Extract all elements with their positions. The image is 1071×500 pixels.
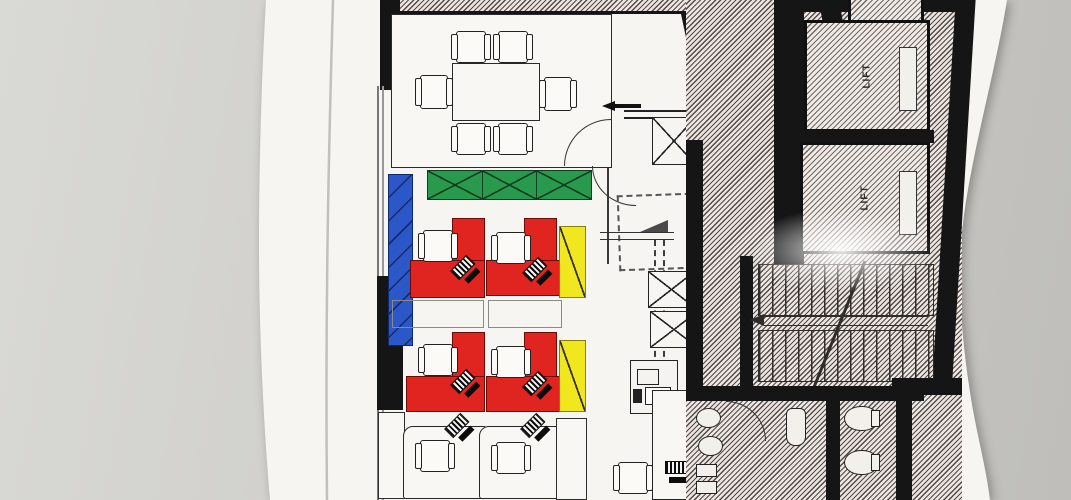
lift-1-door bbox=[899, 47, 917, 111]
desk-chair bbox=[420, 440, 450, 472]
counter-shelf bbox=[600, 232, 674, 240]
toilet-fixture bbox=[696, 481, 717, 494]
meeting-chair bbox=[498, 31, 528, 63]
desk-chair bbox=[496, 346, 526, 378]
meeting-chair bbox=[456, 123, 486, 155]
wc-pan bbox=[844, 450, 878, 475]
lift-2-label: LIFT bbox=[860, 185, 871, 210]
green-cabinet-x-panel bbox=[537, 171, 591, 199]
meeting-chair bbox=[456, 31, 486, 63]
side-panel bbox=[556, 418, 587, 500]
floor-plan: LIFT LIFT bbox=[376, 0, 976, 500]
core-left-wall bbox=[686, 140, 703, 388]
lift-1: LIFT bbox=[804, 20, 930, 132]
side-panel bbox=[378, 412, 405, 499]
stair-flight-lower bbox=[758, 330, 934, 382]
green-cabinet bbox=[427, 170, 592, 200]
door-leaf-bar bbox=[615, 104, 641, 108]
desk-chair bbox=[423, 230, 453, 262]
building-right-wall-upper bbox=[932, 0, 976, 386]
meeting-room-door-arc bbox=[564, 119, 611, 166]
copier-panel bbox=[633, 389, 642, 403]
yellow-end-panel bbox=[559, 226, 586, 298]
washbasin bbox=[696, 408, 721, 428]
stair-handrail bbox=[764, 316, 928, 326]
toilet-door-arc bbox=[726, 401, 766, 441]
meeting-chair bbox=[420, 75, 448, 109]
meeting-chair bbox=[544, 77, 572, 111]
door-swing-arrow bbox=[602, 101, 615, 111]
top-exterior-wall-hatched bbox=[384, 0, 694, 14]
camera-glare bbox=[746, 208, 936, 293]
desk-chair bbox=[496, 442, 526, 474]
core-common-area: LIFT LIFT bbox=[686, 0, 962, 500]
lift-1-label: LIFT bbox=[862, 63, 873, 88]
stair-direction-arrow bbox=[750, 314, 764, 326]
desk-chair bbox=[423, 344, 453, 376]
wc-pan bbox=[786, 408, 806, 446]
toilet-divider-wall bbox=[826, 401, 840, 500]
desk-chair bbox=[618, 462, 648, 494]
photo-of-floor-plan: LIFT LIFT bbox=[0, 0, 1071, 500]
green-cabinet-x-panel bbox=[483, 171, 538, 199]
wedge-shape bbox=[640, 220, 668, 232]
meeting-table bbox=[452, 63, 540, 121]
yellow-end-panel bbox=[559, 340, 586, 412]
toilet-fixture bbox=[696, 464, 717, 477]
stairwell-bottom-wall bbox=[686, 386, 924, 401]
meeting-chair bbox=[498, 123, 528, 155]
green-cabinet-x-panel bbox=[428, 171, 483, 199]
wc-pan bbox=[844, 406, 878, 431]
building-right-wall-lower bbox=[896, 390, 912, 500]
desk-outline bbox=[488, 300, 562, 328]
desk-outline bbox=[392, 300, 484, 328]
copier-tray bbox=[637, 369, 659, 385]
meeting-room bbox=[391, 14, 612, 168]
desk-chair bbox=[496, 232, 526, 264]
washbasin bbox=[698, 436, 723, 456]
